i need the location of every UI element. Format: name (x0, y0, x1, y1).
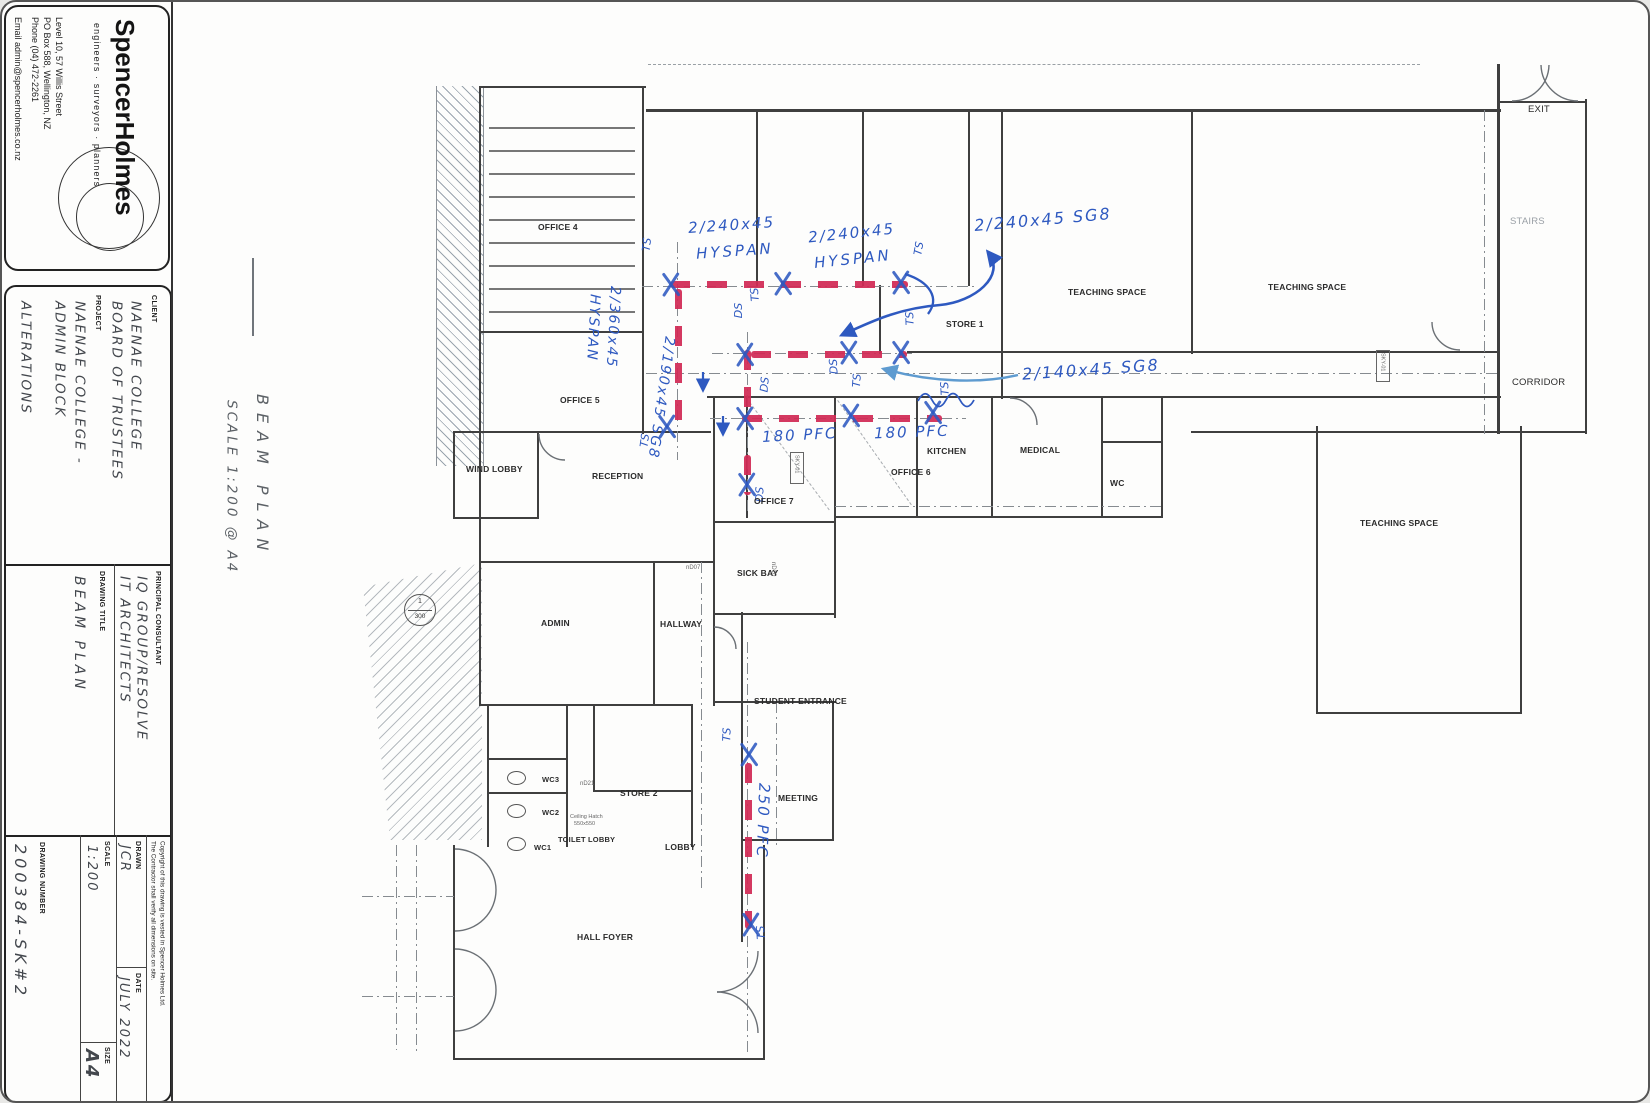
room-label-wc3: WC3 (542, 775, 559, 784)
door-tag-nd07: nD07 (686, 565, 700, 571)
door-arcs (455, 65, 1578, 1033)
room-label-store2: STORE 2 (620, 788, 658, 798)
door-arc (455, 890, 496, 931)
room-label-reception: RECEPTION (592, 471, 643, 481)
room-label-wc1: WC1 (534, 843, 551, 852)
floor-plan: 1 300 SKY-01 SKY-01 (2, 2, 1650, 1103)
leader-arrow-sg8-140 (884, 369, 1018, 381)
beam-label-hyspan-360-size: 2/360x45 (604, 286, 622, 369)
ts-mark: TS (720, 727, 733, 741)
room-label-teaching-space-2: TEACHING SPACE (1268, 282, 1346, 292)
room-label-stairs: STAIRS (1510, 216, 1545, 227)
room-label-teaching-space-3: TEACHING SPACE (1360, 518, 1438, 528)
beam-label-250-pfc: 250 PFC (754, 783, 772, 859)
ds-mark: DS (827, 358, 841, 374)
door-tag-nd10: nD10 (770, 562, 776, 576)
ts-mark: TS (903, 311, 916, 325)
door-arc (539, 434, 565, 460)
ds-mark: DS (732, 303, 745, 318)
room-label-teaching-space-1: TEACHING SPACE (1068, 287, 1146, 297)
room-label-medical: MEDICAL (1020, 445, 1060, 455)
beam-end-x-marker (888, 270, 914, 296)
ts-mark: TS (640, 237, 654, 252)
ts-mark: TS (754, 925, 768, 940)
door-arc (455, 849, 496, 890)
room-label-wc2: WC2 (542, 808, 559, 817)
room-label-office7: OFFICE 7 (754, 496, 794, 506)
door-arc (717, 992, 758, 1033)
ds-mark: DS (758, 376, 772, 393)
ts-mark: TS (850, 373, 864, 388)
room-label-corridor: CORRIDOR (1512, 377, 1565, 388)
door-arc (1010, 398, 1037, 425)
room-label-kitchen: KITCHEN (927, 446, 966, 456)
door-tag-nd21: nD21 (580, 781, 594, 787)
room-label-student-entrance: STUDENT ENTRANCE (754, 696, 847, 706)
room-label-store1: STORE 1 (946, 319, 984, 329)
beam-end-x-marker (658, 272, 684, 298)
beam-end-x-marker (770, 271, 796, 297)
beam-label-180-pfc-b: 180 PFC (874, 422, 950, 443)
ts-mark: TS (748, 287, 762, 302)
beam-2-140x45-sg8 (751, 351, 907, 358)
room-label-office4: OFFICE 4 (538, 222, 578, 232)
door-arc (455, 949, 496, 990)
room-label-office5: OFFICE 5 (560, 395, 600, 405)
ts-mark: TS (938, 381, 952, 395)
door-arc (455, 990, 496, 1031)
beam-end-x-marker (888, 340, 914, 366)
room-label-wind-lobby: WIND LOBBY (466, 464, 523, 474)
room-label-hall-foyer: HALL FOYER (577, 932, 633, 942)
drawing-sheet: SpencerHolmes engineers · surveyors · pl… (0, 0, 1650, 1103)
plan-overlay (2, 2, 1650, 1103)
room-label-lobby: LOBBY (665, 842, 696, 852)
room-label-toilet-lobby: TOILET LOBBY (558, 835, 615, 844)
beam-end-x-marker (732, 406, 758, 432)
door-arc (1512, 65, 1549, 101)
room-label-wc: WC (1110, 478, 1125, 488)
ceiling-hatch-note-line2: 550x550 (574, 821, 595, 827)
room-label-hallway: HALLWAY (660, 619, 702, 629)
ceiling-hatch-note-line1: Ceiling Hatch (570, 814, 603, 820)
beam-label-hyspan-360-type: HYSPAN (584, 294, 602, 362)
room-label-exit: EXIT (1528, 104, 1550, 115)
door-arc (1541, 65, 1578, 101)
door-arc (714, 627, 736, 649)
beam-end-x-marker (838, 403, 864, 429)
beam-end-x-marker (736, 742, 762, 768)
door-arc (717, 951, 758, 992)
room-label-admin: ADMIN (541, 618, 570, 628)
beam-end-x-marker (732, 342, 758, 368)
room-label-meeting: MEETING (778, 793, 818, 803)
door-arc (1432, 322, 1460, 350)
beam-250-pfc (745, 763, 752, 929)
ts-mark: TS (911, 241, 926, 257)
room-label-office6: OFFICE 6 (891, 467, 931, 477)
